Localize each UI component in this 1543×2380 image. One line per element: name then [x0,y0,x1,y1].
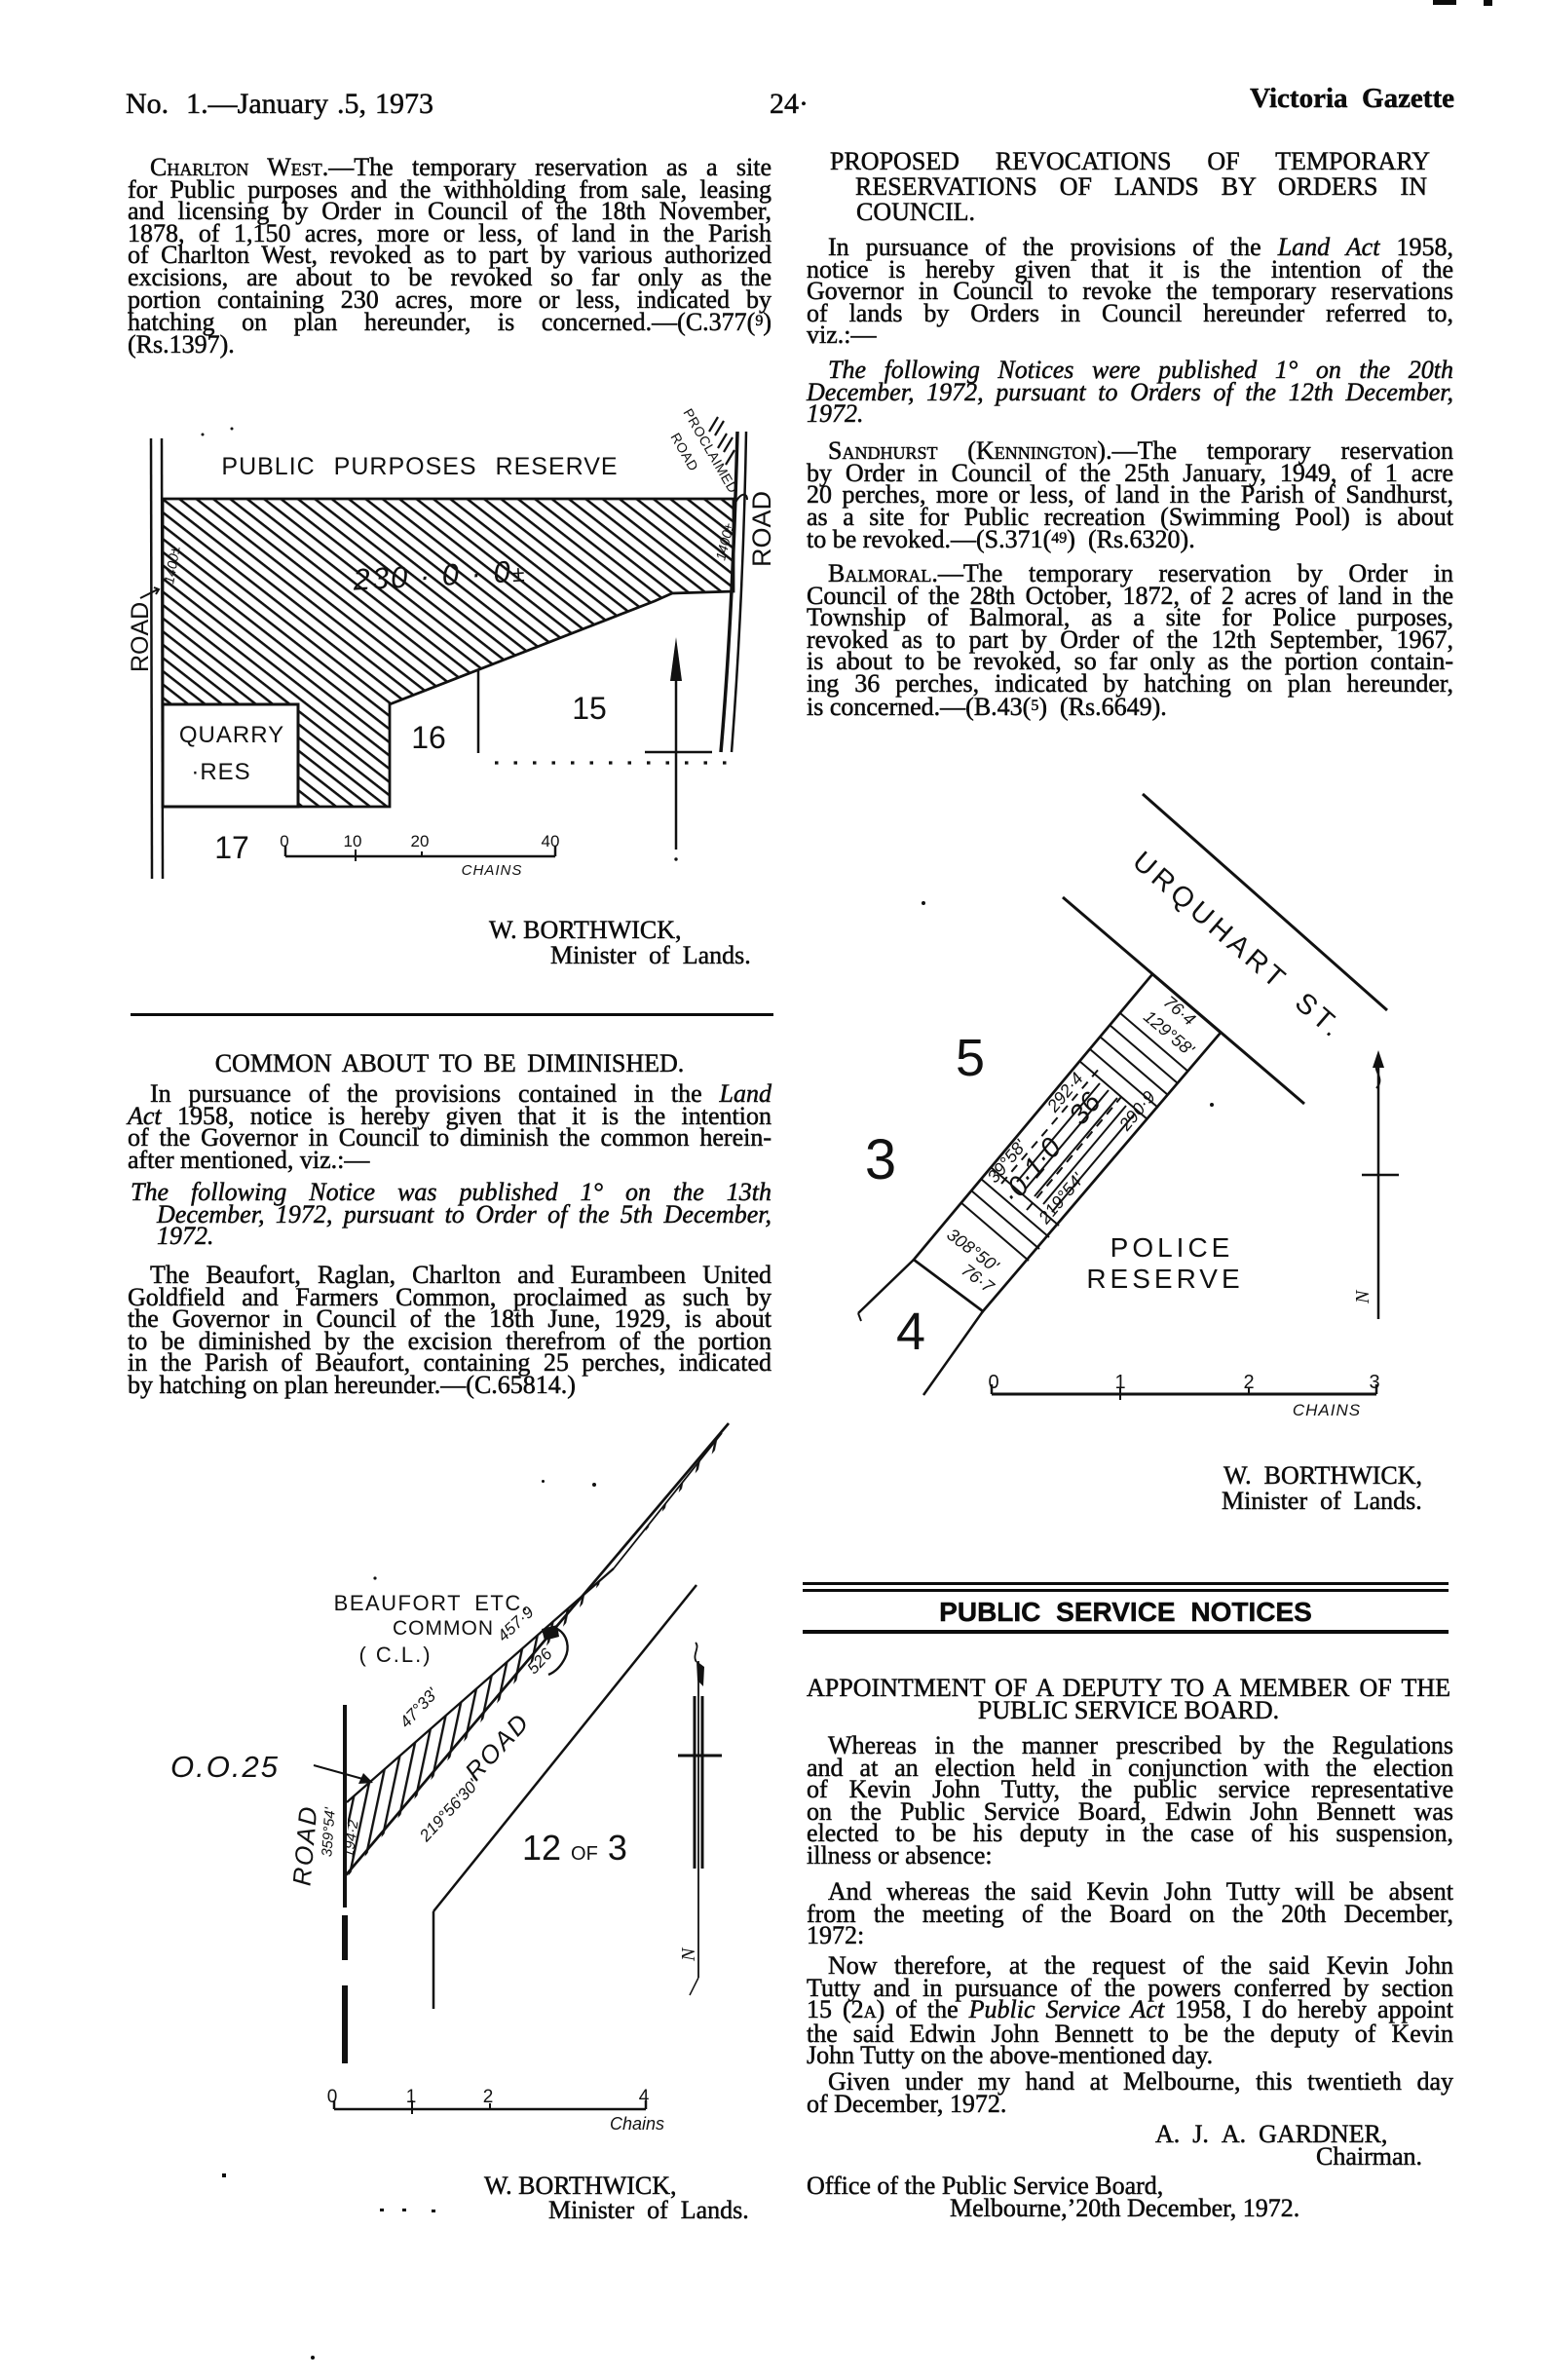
svg-text:ROAD: ROAD [286,1804,322,1887]
svg-text:16: 16 [411,720,446,755]
svg-text:1: 1 [1114,1372,1125,1393]
svg-text:COMMON: COMMON [393,1617,494,1640]
svg-text:POLICE: POLICE [1110,1232,1234,1263]
svg-text:RESERVE: RESERVE [1086,1264,1243,1294]
svg-text:N: N [1352,1289,1374,1304]
svg-text:ROAD: ROAD [747,491,776,567]
svg-text:359°54': 359°54' [319,1806,339,1858]
svg-text:3: 3 [865,1128,896,1191]
svg-text:( C.L.): ( C.L.) [358,1643,432,1667]
svg-text:CHAINS: CHAINS [1293,1401,1361,1419]
svg-text:0: 0 [280,832,288,850]
svg-text:10: 10 [344,832,362,850]
svg-text:1: 1 [406,2087,417,2107]
svg-text:4: 4 [639,2087,650,2107]
svg-text:2: 2 [483,2087,494,2107]
svg-text:5: 5 [956,1029,985,1087]
svg-text:3: 3 [1369,1372,1379,1393]
svg-text:PUBLIC PURPOSES RESERVE: PUBLIC PURPOSES RESERVE [221,453,618,480]
svg-text:ROAD: ROAD [127,602,154,672]
svg-text:QUARRY: QUARRY [179,722,284,748]
svg-text:20: 20 [411,832,430,850]
svg-text:17: 17 [214,830,249,865]
svg-text:12 OF 3: 12 OF 3 [522,1828,627,1868]
svg-text:0: 0 [988,1372,998,1393]
svg-text:15: 15 [572,691,607,726]
svg-text:O.O.25: O.O.25 [170,1750,280,1784]
svg-text:2: 2 [1243,1372,1254,1393]
svg-text:BEAUFORT ETC.: BEAUFORT ETC. [334,1591,530,1615]
svg-text:4: 4 [896,1303,925,1361]
svg-text:·RES: ·RES [191,759,250,785]
svg-text:40: 40 [542,832,560,850]
svg-text:Chains: Chains [610,2114,664,2134]
svg-text:0: 0 [327,2087,338,2107]
svg-text:CHAINS: CHAINS [462,862,523,879]
svg-text:N: N [678,1946,699,1962]
